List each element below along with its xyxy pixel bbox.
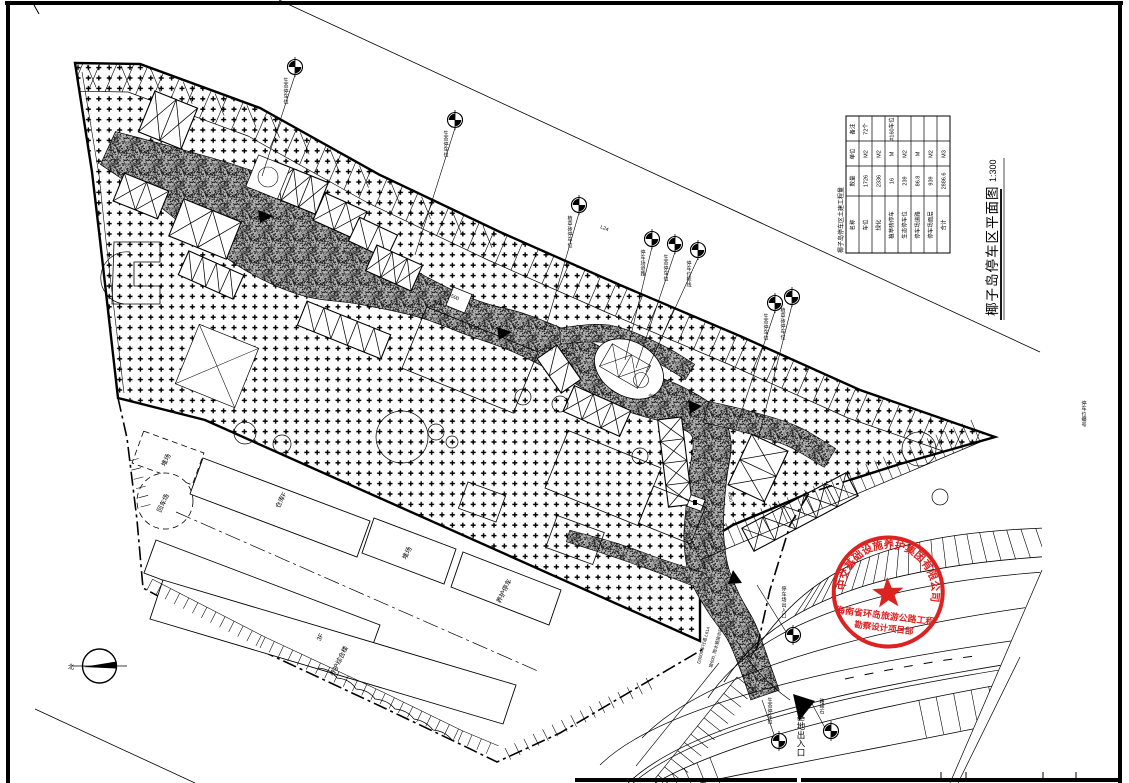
svg-text:86.8: 86.8	[916, 176, 922, 187]
svg-text:M2: M2	[903, 150, 909, 158]
svg-text:239: 239	[903, 176, 909, 185]
svg-text:单位: 单位	[849, 148, 857, 160]
svg-text:停车场道路: 停车场道路	[914, 211, 922, 239]
svg-text:M2: M2	[877, 150, 883, 158]
svg-text:M3: M3	[942, 150, 948, 158]
svg-text:停车位编号: 停车位编号	[1081, 400, 1086, 429]
svg-text:绿化: 绿化	[875, 219, 883, 231]
svg-text:1726: 1726	[864, 175, 870, 187]
svg-text:2886.6: 2886.6	[942, 173, 948, 190]
svg-text:植草砖停车位: 植草砖停车位	[780, 307, 785, 341]
svg-text:备注: 备注	[849, 123, 857, 135]
svg-text:椰子岛停车区平面图: 椰子岛停车区平面图	[984, 186, 1000, 317]
svg-text:基地出入口: 基地出入口	[797, 712, 806, 758]
svg-text:生态停车位: 生态停车位	[283, 77, 288, 106]
svg-text:1:300: 1:300	[988, 159, 998, 182]
svg-text:路缘石: 路缘石	[819, 698, 824, 716]
svg-text:生态停车位: 生态停车位	[901, 211, 909, 239]
svg-text:生态停车位: 生态停车位	[767, 697, 772, 726]
svg-text:停车场出入口: 停车场出入口	[781, 586, 786, 620]
svg-text:数量: 数量	[849, 175, 857, 187]
svg-text:停车位标线: 停车位标线	[686, 260, 691, 289]
svg-text:停车场道路: 停车场道路	[640, 249, 645, 278]
svg-text:北: 北	[68, 663, 74, 671]
svg-text:#160车位: #160车位	[888, 117, 896, 141]
svg-text:名称: 名称	[849, 219, 857, 231]
svg-text:植草砖停车位: 植草砖停车位	[567, 215, 572, 249]
svg-text:72个: 72个	[863, 123, 870, 135]
svg-text:16: 16	[890, 178, 896, 184]
svg-text:合计: 合计	[940, 219, 948, 231]
svg-text:生态停车位: 生态停车位	[663, 254, 668, 283]
svg-text:生态停车位: 生态停车位	[763, 313, 768, 342]
svg-text:停车场面层: 停车场面层	[927, 211, 935, 239]
svg-text:M2: M2	[929, 150, 935, 158]
svg-text:生态停车位: 生态停车位	[443, 130, 448, 159]
svg-text:椰子岛停车区土建工程量: 椰子岛停车区土建工程量	[837, 187, 845, 253]
svg-text:M: M	[890, 151, 896, 156]
svg-text:M2: M2	[864, 150, 870, 158]
svg-text:植草砖停车: 植草砖停车	[888, 211, 896, 239]
svg-text:M: M	[916, 151, 922, 156]
svg-text:939: 939	[929, 176, 935, 185]
svg-text:2336: 2336	[877, 175, 883, 187]
svg-text:车位: 车位	[862, 219, 870, 231]
